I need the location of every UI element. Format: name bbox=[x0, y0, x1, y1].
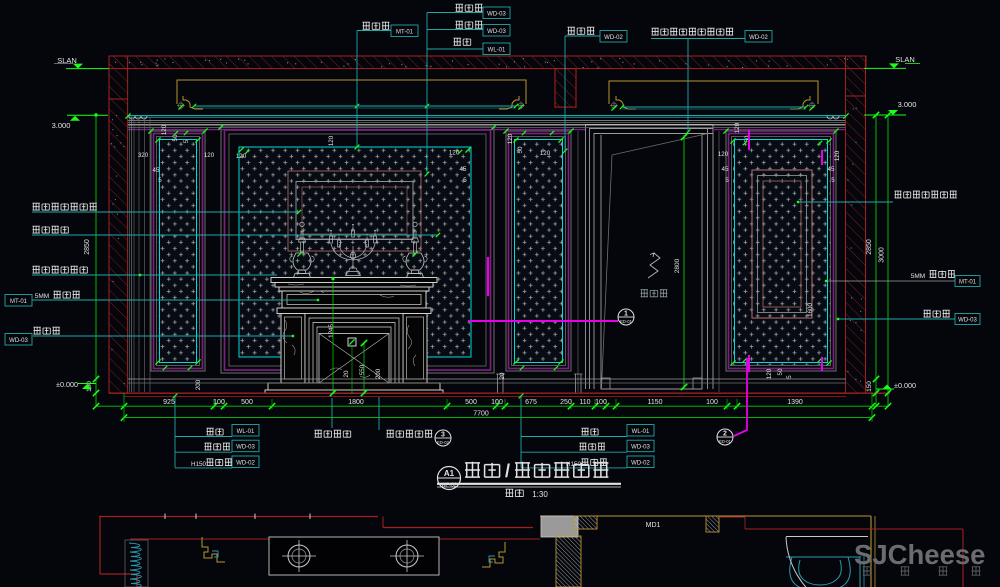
svg-text:2: 2 bbox=[723, 431, 727, 438]
svg-text:MT-01: MT-01 bbox=[396, 30, 414, 36]
svg-text:SLAN: SLAN bbox=[895, 55, 915, 64]
svg-text:100: 100 bbox=[706, 399, 718, 406]
svg-text:120: 120 bbox=[328, 135, 335, 146]
svg-text:5: 5 bbox=[183, 139, 190, 143]
svg-text:1245: 1245 bbox=[328, 324, 335, 338]
svg-text:3: 3 bbox=[441, 432, 445, 439]
svg-text:1150: 1150 bbox=[647, 399, 662, 406]
svg-text:320: 320 bbox=[138, 152, 149, 159]
svg-text:2850: 2850 bbox=[866, 239, 873, 255]
svg-text:45: 45 bbox=[828, 166, 835, 173]
svg-text:±0.000: ±0.000 bbox=[56, 380, 78, 389]
svg-text:1:30: 1:30 bbox=[532, 490, 548, 499]
svg-text:WD-03: WD-03 bbox=[236, 445, 255, 451]
svg-text:WD-02: WD-02 bbox=[631, 461, 650, 467]
svg-text:1390: 1390 bbox=[787, 399, 803, 406]
svg-text:ED-01: ED-01 bbox=[620, 319, 633, 324]
svg-text:45: 45 bbox=[153, 167, 160, 174]
svg-text:120: 120 bbox=[834, 150, 841, 161]
svg-text:1: 1 bbox=[624, 311, 628, 318]
svg-text:20: 20 bbox=[343, 370, 350, 377]
svg-text:WL-01: WL-01 bbox=[237, 429, 255, 435]
svg-text:MT-01: MT-01 bbox=[10, 299, 28, 305]
svg-text:3.000: 3.000 bbox=[52, 121, 71, 130]
svg-text:5: 5 bbox=[463, 177, 467, 184]
svg-text:50: 50 bbox=[777, 368, 784, 375]
svg-text:WD-02: WD-02 bbox=[604, 35, 623, 41]
svg-text:WL-01: WL-01 bbox=[488, 48, 506, 54]
svg-text:200: 200 bbox=[375, 368, 382, 379]
svg-text:500: 500 bbox=[465, 399, 477, 406]
svg-text:120: 120 bbox=[204, 152, 215, 159]
svg-text:100: 100 bbox=[595, 399, 607, 406]
svg-text:2850: 2850 bbox=[84, 239, 91, 255]
svg-text:100: 100 bbox=[213, 399, 225, 406]
svg-text:50: 50 bbox=[517, 146, 524, 153]
svg-text:1600: 1600 bbox=[807, 303, 814, 317]
svg-text:5: 5 bbox=[725, 177, 729, 184]
svg-text:WD-02: WD-02 bbox=[749, 35, 768, 41]
svg-text:550: 550 bbox=[359, 364, 366, 375]
svg-text:5MM: 5MM bbox=[911, 273, 925, 280]
svg-text:5: 5 bbox=[158, 177, 162, 184]
svg-text:120: 120 bbox=[766, 368, 773, 379]
svg-text:110: 110 bbox=[579, 399, 590, 406]
svg-text:WD-03: WD-03 bbox=[958, 318, 977, 324]
svg-text:H150: H150 bbox=[191, 461, 207, 468]
svg-text:45: 45 bbox=[722, 166, 729, 173]
svg-text:45: 45 bbox=[460, 166, 467, 173]
svg-text:5: 5 bbox=[831, 177, 835, 184]
svg-text:120: 120 bbox=[734, 122, 741, 133]
svg-text:250: 250 bbox=[560, 399, 572, 406]
svg-text:50: 50 bbox=[172, 134, 179, 141]
svg-text:3000: 3000 bbox=[879, 247, 886, 263]
svg-text:3.000: 3.000 bbox=[898, 100, 917, 109]
svg-text:MD1: MD1 bbox=[646, 522, 661, 529]
svg-text:7700: 7700 bbox=[473, 411, 489, 418]
svg-text:675: 675 bbox=[525, 399, 537, 406]
svg-text:WL-01: WL-01 bbox=[632, 429, 650, 435]
svg-text:200: 200 bbox=[195, 379, 202, 390]
svg-text:±0.000: ±0.000 bbox=[894, 381, 916, 390]
svg-text:A1: A1 bbox=[444, 469, 455, 478]
svg-text:5MM: 5MM bbox=[35, 293, 49, 300]
svg-text:2800: 2800 bbox=[674, 258, 681, 273]
svg-text:925: 925 bbox=[163, 399, 175, 406]
svg-text:ED-02: ED-02 bbox=[437, 440, 450, 445]
svg-text:WD-03: WD-03 bbox=[487, 29, 506, 35]
svg-text:120: 120 bbox=[718, 151, 729, 158]
svg-text:100: 100 bbox=[491, 399, 503, 406]
svg-text:120: 120 bbox=[449, 150, 460, 157]
svg-text:MT-01: MT-01 bbox=[959, 280, 977, 286]
svg-text:1800: 1800 bbox=[348, 399, 364, 406]
svg-text:SJCheese: SJCheese bbox=[854, 539, 985, 570]
svg-text:ED-01: ED-01 bbox=[719, 439, 732, 444]
svg-text:WD-03: WD-03 bbox=[631, 445, 650, 451]
svg-text:150: 150 bbox=[866, 381, 873, 392]
svg-text:5: 5 bbox=[786, 375, 793, 379]
svg-text:120: 120 bbox=[161, 124, 168, 135]
svg-text:20: 20 bbox=[499, 372, 506, 379]
svg-text:120: 120 bbox=[507, 133, 514, 144]
svg-text:500: 500 bbox=[241, 399, 253, 406]
svg-text:120: 120 bbox=[540, 150, 551, 157]
svg-text:WD-02: WD-02 bbox=[236, 461, 255, 467]
svg-text:WD-03: WD-03 bbox=[487, 12, 506, 18]
svg-text:WD-03: WD-03 bbox=[9, 338, 28, 344]
svg-text:/: / bbox=[505, 461, 510, 481]
